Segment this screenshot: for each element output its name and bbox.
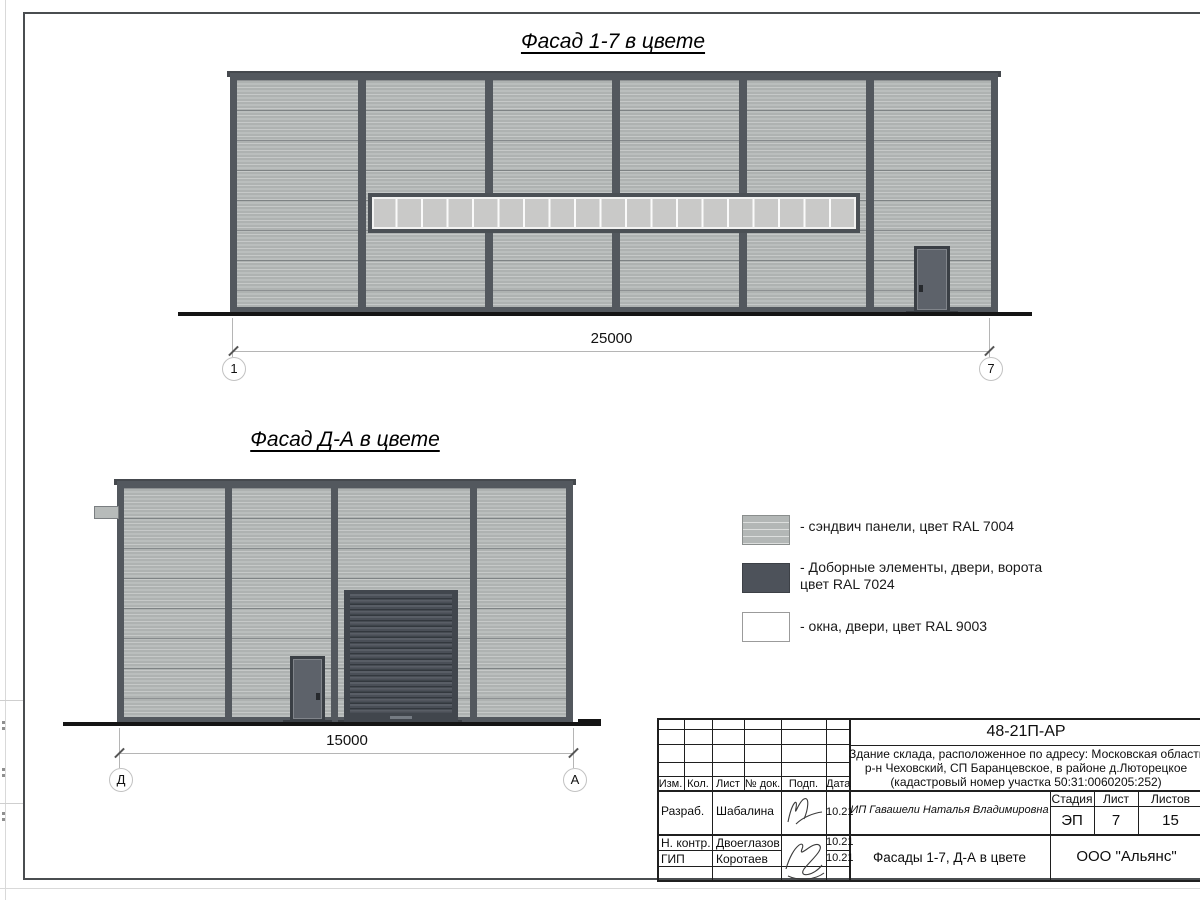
signature-icon <box>779 835 827 883</box>
door-handle <box>316 693 320 700</box>
stamp-sheets-value: 15 <box>1138 812 1200 829</box>
stamp-line <box>657 744 849 745</box>
gate-handle <box>390 716 412 719</box>
stamp-company: ООО "Альянс" <box>1050 848 1200 865</box>
stamp-line <box>657 850 781 851</box>
stamp-line <box>657 776 849 777</box>
stamp-col-podp: Подп. <box>781 778 826 790</box>
ground-line <box>178 312 1032 316</box>
stamp-sheet-label: Лист <box>1094 792 1138 806</box>
stamp-row-role: ГИП <box>661 852 685 866</box>
stamp-description-line: Здание склада, расположенное по адресу: … <box>849 747 1200 761</box>
stamp-line <box>657 718 659 880</box>
legend-swatch-ral7004 <box>742 515 790 545</box>
signature-icon <box>783 792 825 834</box>
facade-d-a-column <box>225 488 232 718</box>
stamp-row-name: Коротаев <box>716 852 768 866</box>
legend-label: - окна, двери, цвет RAL 9003 <box>800 618 987 634</box>
stamp-line <box>712 718 713 880</box>
stamp-col-kol: Кол. <box>684 778 712 790</box>
stamp-line <box>657 762 849 763</box>
legend-label: - Доборные элементы, двери, ворота <box>800 559 1042 575</box>
margin-label-mark <box>2 818 5 821</box>
frame-border-left <box>23 12 25 880</box>
legend-swatch-ral9003 <box>742 612 790 642</box>
stamp-description-line: (кадастровый номер участка 50:31:0060205… <box>849 775 1200 789</box>
margin-divider <box>0 700 23 701</box>
ribbon-window-strip <box>368 193 860 233</box>
facade-1-7-column <box>866 80 874 307</box>
stamp-row-name: Двоеглазов <box>716 836 780 850</box>
roller-gate <box>344 590 458 715</box>
stamp-line <box>657 729 849 730</box>
facade-d-a-column <box>331 488 338 718</box>
stamp-row-name: Шабалина <box>716 804 774 818</box>
axis-marker-d: Д <box>109 768 133 792</box>
stamp-line <box>826 850 849 851</box>
margin-label-mark <box>2 721 5 724</box>
stamp-row-role: Н. контр. <box>661 836 711 850</box>
wall-protrusion <box>94 506 119 519</box>
door-handle <box>919 285 923 292</box>
facade-d-a-column <box>470 488 477 718</box>
stamp-row-role: Разраб. <box>661 804 704 818</box>
margin-label-mark <box>2 768 5 771</box>
stamp-row-date: 10.21 <box>826 852 849 864</box>
facade-1-7-title: Фасад 1-7 в цвете <box>363 30 863 54</box>
dimension-value: 15000 <box>120 732 574 749</box>
stamp-col-list: Лист <box>712 778 744 790</box>
axis-marker-7: 7 <box>979 357 1003 381</box>
margin-label-mark <box>2 727 5 730</box>
stamp-col-izm: Изм. <box>657 778 684 790</box>
facade-1-7-door <box>914 246 950 313</box>
stamp-line <box>657 880 1200 882</box>
stamp-description-line: р-н Чеховский, СП Баранцевское, в районе… <box>849 761 1200 775</box>
dimension-line <box>233 351 990 352</box>
stamp-stage-value: ЭП <box>1050 812 1094 829</box>
stamp-col-doc: № док. <box>744 778 781 790</box>
stamp-line <box>657 718 1200 720</box>
stamp-line <box>849 745 1200 746</box>
stamp-project-code: 48-21П-АР <box>849 723 1200 741</box>
drawing-sheet: Фасад 1-7 в цвете 25000 1 7 Фасад Д-А в … <box>0 0 1200 900</box>
margin-label-mark <box>2 774 5 777</box>
stamp-sheets-label: Листов <box>1138 792 1200 806</box>
legend-label-line2: цвет RAL 7024 <box>800 576 895 592</box>
facade-1-7-column <box>358 80 366 307</box>
axis-marker-1: 1 <box>222 357 246 381</box>
facade-d-a-title: Фасад Д-А в цвете <box>95 428 595 452</box>
sheet-outer-edge-left <box>5 0 6 900</box>
dimension-value: 25000 <box>233 330 990 347</box>
margin-divider <box>0 803 23 804</box>
axis-marker-a: А <box>563 768 587 792</box>
stamp-line <box>1050 806 1200 807</box>
dimension-line <box>120 753 574 754</box>
roller-gate-bottom-bar <box>344 713 458 722</box>
margin-label-mark <box>2 812 5 815</box>
stamp-sheet-value: 7 <box>1094 812 1138 829</box>
ground-step <box>578 719 601 726</box>
sheet-outer-edge-bottom <box>0 888 1200 889</box>
stamp-row-date: 10.21 <box>826 806 849 818</box>
legend-swatch-ral7024 <box>742 563 790 593</box>
stamp-stage-label: Стадия <box>1050 792 1094 806</box>
legend-label: - сэндвич панели, цвет RAL 7004 <box>800 518 1014 534</box>
stamp-col-data: Дата <box>826 778 849 790</box>
facade-d-a-door <box>290 656 325 722</box>
frame-border-top <box>23 12 1200 14</box>
stamp-drawing-title: Фасады 1-7, Д-А в цвете <box>849 850 1050 865</box>
stamp-row-date: 10.21 <box>826 836 849 848</box>
ground-line <box>63 722 601 726</box>
stamp-client: ИП Гавашели Наталья Владимировна <box>849 804 1050 816</box>
